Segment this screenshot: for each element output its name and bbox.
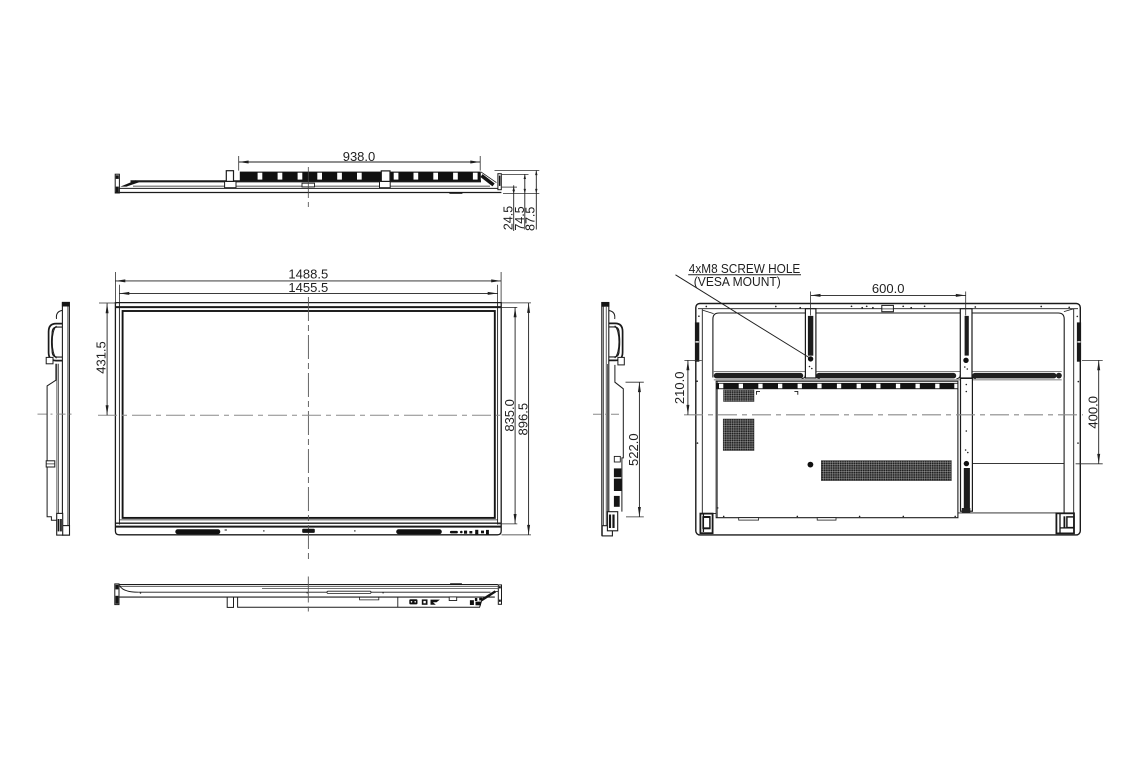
svg-text:600.0: 600.0 <box>872 281 905 296</box>
svg-text:87.5: 87.5 <box>524 207 538 231</box>
svg-text:431.5: 431.5 <box>94 341 109 374</box>
svg-text:522.0: 522.0 <box>626 433 641 466</box>
svg-text:896.5: 896.5 <box>515 403 530 436</box>
svg-text:210.0: 210.0 <box>672 372 687 405</box>
svg-text:938.0: 938.0 <box>343 149 376 164</box>
svg-text:(VESA MOUNT): (VESA MOUNT) <box>694 274 781 289</box>
svg-text:1455.5: 1455.5 <box>288 280 328 295</box>
svg-text:400.0: 400.0 <box>1086 396 1101 429</box>
